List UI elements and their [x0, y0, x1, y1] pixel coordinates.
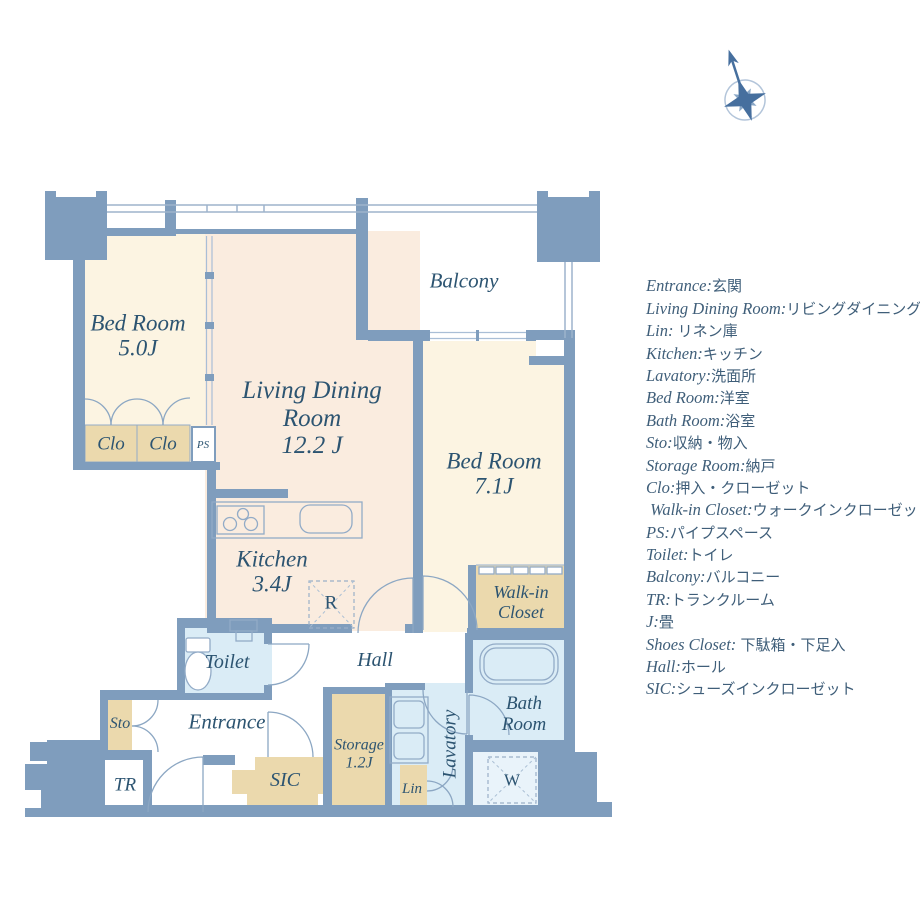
linen-label: Lin — [402, 781, 422, 798]
legend-term: Bath Room: — [646, 411, 725, 430]
legend-definition: 洋室 — [720, 390, 750, 407]
storage-label: Storage 1.2J — [334, 736, 384, 771]
legend-term: Storage Room: — [646, 456, 745, 475]
pillar-top-right — [537, 191, 600, 262]
legend-term: Bed Room: — [646, 388, 720, 407]
legend-definition: シューズインクローゼット — [676, 681, 855, 698]
legend-term: Hall: — [646, 657, 681, 676]
legend-term: Sto: — [646, 433, 673, 452]
toilet-label: Toilet — [205, 651, 250, 673]
hall-label: Hall — [357, 649, 393, 671]
bathroom-label: Bath Room — [502, 694, 546, 736]
clo-label-2: Clo — [149, 435, 176, 456]
entry-door — [148, 757, 203, 812]
legend-term: Walk-in Closet: — [646, 500, 753, 519]
pillar-top-left — [45, 191, 107, 260]
legend-definition: リネン庫 — [674, 323, 738, 340]
living-dining-label: Living Dining Room 12.2 J — [242, 377, 382, 460]
walkin-closet-label: Walk-in Closet — [493, 583, 548, 623]
balcony-label: Balcony — [430, 269, 499, 292]
legend-definition: バルコニー — [706, 569, 781, 586]
legend-definition: リビングダイニング — [786, 301, 920, 318]
legend-definition: パイプスペース — [670, 525, 773, 542]
kitchen-label: Kitchen 3.4J — [236, 547, 308, 598]
legend-term: J: — [646, 612, 659, 631]
tr-label: TR — [114, 776, 136, 797]
legend-term: Shoes Closet: — [646, 635, 736, 654]
legend-definition: 納戸 — [745, 458, 775, 475]
legend-term: Kitchen: — [646, 344, 703, 363]
legend-definition: 下駄箱・下足入 — [736, 637, 845, 654]
entrance-label: Entrance — [189, 710, 266, 733]
clo-label-1: Clo — [97, 435, 124, 456]
legend-term: SIC: — [646, 679, 676, 698]
legend-definition: 洗面所 — [711, 368, 756, 385]
ps-label: PS — [197, 439, 209, 451]
legend-term: Toilet: — [646, 545, 688, 564]
bedroom7-window — [430, 330, 526, 341]
legend-definition: トランクルーム — [671, 592, 775, 609]
corridor-structure — [25, 740, 105, 817]
refrigerator-label: R — [325, 594, 338, 615]
legend-definition: ウォークインクローゼット — [753, 502, 920, 519]
bedroom7-label: Bed Room 7.1J — [446, 449, 541, 500]
legend-term: Lavatory: — [646, 366, 711, 385]
legend-term: Living Dining Room: — [646, 299, 786, 318]
legend-term: Entrance: — [646, 276, 712, 295]
legend-term: Balcony: — [646, 567, 706, 586]
legend-definition: 浴室 — [725, 413, 755, 430]
legend-term: Clo: — [646, 478, 675, 497]
legend: Entrance:玄関 Living Dining Room:リビングダイニング… — [622, 253, 920, 678]
legend-item: Entrance:玄関 — [622, 253, 920, 275]
legend-definition: 畳 — [659, 614, 674, 631]
sto-label: Sto — [110, 715, 130, 733]
legend-term: TR: — [646, 590, 671, 609]
bedroom5-label: Bed Room 5.0J — [90, 311, 185, 362]
legend-definition: キッチン — [703, 346, 763, 363]
legend-term: PS: — [646, 523, 670, 542]
legend-definition: トイレ — [688, 547, 733, 564]
legend-definition: 玄関 — [712, 278, 742, 295]
washer-label: W — [504, 772, 520, 791]
legend-definition: ホール — [681, 659, 726, 676]
floor-plan-page: Bed Room 5.0J Living Dining Room 12.2 J … — [0, 0, 920, 920]
compass-rose — [708, 43, 773, 128]
sic-label: SIC — [270, 769, 300, 791]
lavatory-label: Lavatory — [441, 710, 462, 779]
legend-term: Lin: — [646, 321, 674, 340]
legend-definition: 押入・クローゼット — [675, 480, 810, 497]
legend-definition: 収納・物入 — [673, 435, 748, 452]
